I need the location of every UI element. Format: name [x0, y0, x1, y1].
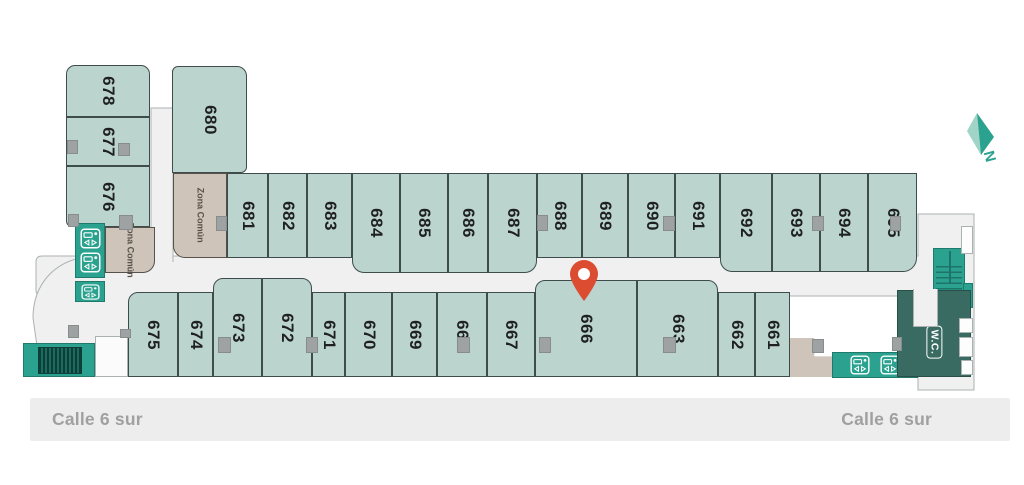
- elevator-icon: [850, 355, 870, 375]
- unit-663[interactable]: 663: [637, 280, 718, 377]
- door-marker: [959, 337, 973, 357]
- unit-label: 661: [763, 320, 783, 350]
- unit-label: 689: [595, 201, 615, 231]
- unit-label: 683: [320, 201, 340, 231]
- pillar: [812, 216, 824, 231]
- door-marker: [961, 360, 973, 375]
- unit-689[interactable]: 689: [582, 173, 628, 258]
- pillar: [68, 214, 79, 227]
- unit-662[interactable]: 662: [718, 292, 755, 377]
- pillar: [812, 339, 824, 353]
- unit-label: 691: [688, 201, 708, 231]
- service-area: [95, 336, 128, 377]
- wc-label: W.C.: [926, 326, 942, 359]
- unit-674[interactable]: 674: [178, 292, 213, 377]
- pillar: [218, 337, 231, 353]
- unit-label: 694: [834, 208, 854, 238]
- unit-label: 674: [186, 320, 206, 350]
- unit-694[interactable]: 694: [820, 173, 868, 272]
- pillar: [67, 140, 78, 154]
- pillar: [119, 215, 133, 230]
- pillar: [457, 337, 470, 353]
- pillar: [118, 143, 130, 156]
- unit-label: 677: [98, 127, 118, 157]
- pillar: [663, 337, 676, 353]
- pillar: [216, 216, 227, 231]
- unit-680[interactable]: 680: [172, 66, 247, 173]
- unit-684[interactable]: 684: [352, 173, 400, 273]
- elevator-single-left: [75, 281, 105, 302]
- unit-label: 684: [366, 208, 386, 238]
- unit-669[interactable]: 669: [392, 292, 437, 377]
- unit-692[interactable]: 692: [720, 173, 772, 272]
- unit-label: 690: [642, 201, 662, 231]
- unit-label: 667: [501, 320, 521, 350]
- escalator-icon: [23, 343, 95, 377]
- unit-675[interactable]: 675: [128, 292, 178, 377]
- unit-678[interactable]: 678: [66, 65, 150, 117]
- elevator-bank-left: [75, 223, 105, 278]
- street-label-right: Calle 6 sur: [841, 409, 932, 430]
- unit-677[interactable]: 677: [66, 117, 150, 166]
- unit-label: 692: [736, 208, 756, 238]
- unit-661[interactable]: 661: [755, 292, 790, 377]
- pillar: [890, 216, 901, 231]
- unit-label: 693: [786, 208, 806, 238]
- door-marker: [961, 226, 973, 254]
- unit-670[interactable]: 670: [345, 292, 392, 377]
- unit-label: 686: [458, 208, 478, 238]
- unit-label: 670: [359, 320, 379, 350]
- pillar: [68, 325, 79, 338]
- unit-label: 687: [503, 208, 523, 238]
- pillar: [539, 337, 551, 353]
- stairs-rail: [949, 251, 951, 283]
- elevator-icon: [80, 228, 101, 249]
- zona-comun-label: Zona Común: [195, 188, 205, 243]
- unit-label: 680: [200, 105, 220, 135]
- street-strip: Calle 6 sur Calle 6 sur: [30, 398, 1010, 441]
- unit-label: 678: [98, 76, 118, 106]
- unit-label: 672: [277, 313, 297, 343]
- wc-entry-corridor: [913, 289, 938, 327]
- pillar: [120, 329, 131, 338]
- unit-673[interactable]: 673: [213, 278, 262, 377]
- unit-686[interactable]: 686: [448, 173, 488, 273]
- pillar: [537, 215, 548, 231]
- unit-671[interactable]: 671: [312, 292, 345, 377]
- pillar: [306, 337, 318, 353]
- elevator-icon: [81, 284, 100, 300]
- unit-label: 681: [238, 201, 258, 231]
- unit-683[interactable]: 683: [307, 173, 352, 258]
- zona-comun-label: Zona Común: [125, 223, 135, 278]
- unit-667[interactable]: 667: [487, 292, 535, 377]
- unit-label: 675: [143, 320, 163, 350]
- location-pin[interactable]: [566, 259, 602, 303]
- elevator-icon: [80, 252, 101, 273]
- unit-label: 688: [550, 201, 570, 231]
- unit-label: 666: [576, 314, 596, 344]
- unit-672[interactable]: 672: [262, 278, 312, 377]
- pillar: [892, 337, 902, 351]
- unit-label: 662: [727, 320, 747, 350]
- unit-681[interactable]: 681: [227, 173, 268, 258]
- compass-icon: [940, 95, 1010, 170]
- zona-comun-lower: Zona Común: [105, 227, 155, 273]
- escalator-steps: [38, 347, 82, 374]
- unit-668[interactable]: 668: [437, 292, 487, 377]
- door-marker: [959, 318, 973, 333]
- unit-label: 671: [319, 320, 339, 350]
- floor-plan: 6786776766806816826836846856866876886896…: [0, 0, 1024, 485]
- street-label-left: Calle 6 sur: [52, 409, 143, 430]
- unit-label: 685: [414, 208, 434, 238]
- unit-682[interactable]: 682: [268, 173, 307, 258]
- unit-label: 682: [278, 201, 298, 231]
- unit-691[interactable]: 691: [675, 173, 720, 258]
- pillar: [663, 216, 675, 231]
- unit-label: 669: [405, 320, 425, 350]
- unit-687[interactable]: 687: [488, 173, 537, 273]
- unit-685[interactable]: 685: [400, 173, 448, 273]
- unit-label: 676: [98, 182, 118, 212]
